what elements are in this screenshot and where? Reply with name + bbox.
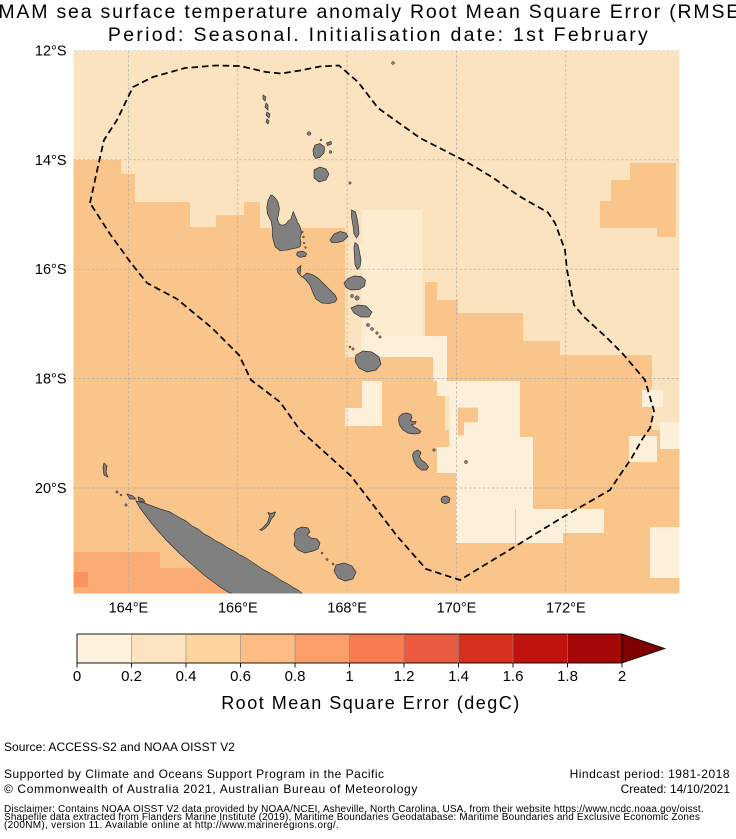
svg-text:0.2: 0.2 [121,668,142,685]
svg-text:20°S: 20°S [35,481,67,497]
svg-text:164°E: 164°E [109,601,149,617]
svg-text:172°E: 172°E [546,601,586,617]
svg-text:1.2: 1.2 [394,668,415,685]
svg-text:0.8: 0.8 [285,668,306,685]
svg-text:1.6: 1.6 [503,668,524,685]
svg-text:12°S: 12°S [35,44,67,60]
svg-text:1: 1 [345,668,353,685]
svg-text:166°E: 166°E [218,601,258,617]
svg-text:14°S: 14°S [35,153,67,169]
svg-text:2: 2 [618,668,626,685]
svg-text:168°E: 168°E [327,601,367,617]
svg-text:18°S: 18°S [35,372,67,388]
svg-text:0.6: 0.6 [230,668,251,685]
svg-text:16°S: 16°S [35,262,67,278]
svg-text:0.4: 0.4 [176,668,197,685]
svg-text:0: 0 [73,668,81,685]
svg-text:1.8: 1.8 [557,668,578,685]
svg-text:1.4: 1.4 [448,668,469,685]
svg-text:Root Mean Square Error (degC): Root Mean Square Error (degC) [221,693,521,713]
svg-text:170°E: 170°E [437,601,477,617]
